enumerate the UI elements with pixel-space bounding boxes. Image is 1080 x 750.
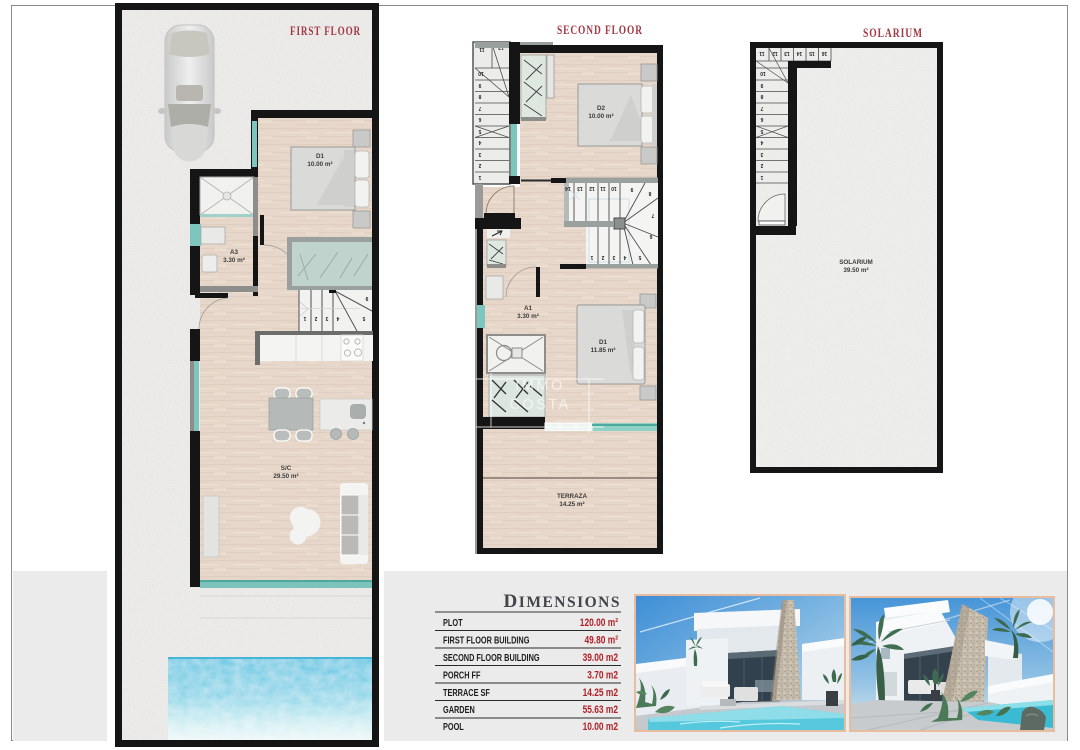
svg-text:10.00 m2: 10.00 m2 (583, 721, 619, 734)
svg-text:15: 15 (809, 50, 815, 56)
svg-text:4: 4 (760, 139, 763, 145)
svg-text:PORCH FF: PORCH FF (443, 669, 481, 681)
svg-text:14: 14 (797, 50, 803, 56)
svg-text:3: 3 (325, 315, 328, 321)
svg-text:SECOND FLOOR BUILDING: SECOND FLOOR BUILDING (443, 652, 540, 664)
svg-text:2: 2 (601, 254, 604, 260)
svg-text:DIMENSIONS: DIMENSIONS (504, 591, 621, 612)
svg-text:11: 11 (600, 185, 606, 191)
svg-text:12: 12 (772, 50, 778, 56)
svg-text:SECOND FLOOR: SECOND FLOOR (557, 23, 643, 37)
svg-text:D1: D1 (316, 153, 325, 160)
svg-text:3.30 m²: 3.30 m² (223, 257, 245, 264)
svg-text:55.63 m2: 55.63 m2 (583, 704, 619, 717)
svg-text:3: 3 (478, 151, 481, 157)
svg-text:9: 9 (760, 82, 763, 88)
svg-text:A3: A3 (230, 249, 239, 256)
svg-text:13: 13 (577, 185, 583, 191)
svg-text:GARDEN: GARDEN (443, 704, 475, 716)
svg-text:SOLARIUM: SOLARIUM (839, 259, 873, 266)
svg-text:1: 1 (478, 174, 481, 180)
svg-text:7: 7 (760, 105, 763, 111)
svg-text:D2: D2 (597, 105, 606, 112)
svg-text:5: 5 (478, 128, 481, 134)
svg-text:10.00 m²: 10.00 m² (307, 161, 332, 168)
svg-text:TERRACE SF: TERRACE SF (443, 687, 490, 699)
svg-text:IMMO: IMMO (515, 378, 564, 394)
svg-text:12: 12 (589, 185, 595, 191)
svg-text:7: 7 (478, 105, 481, 111)
svg-text:10: 10 (760, 70, 766, 76)
svg-text:4: 4 (336, 315, 339, 321)
svg-text:9: 9 (365, 295, 368, 301)
svg-text:9: 9 (630, 186, 633, 192)
svg-text:6: 6 (478, 116, 481, 122)
svg-text:5: 5 (760, 128, 763, 134)
svg-text:14.25 m2: 14.25 m2 (583, 687, 619, 700)
svg-text:39.00 m2: 39.00 m2 (583, 652, 619, 665)
svg-text:3: 3 (612, 254, 615, 260)
svg-text:1: 1 (590, 254, 593, 260)
svg-text:6: 6 (760, 116, 763, 122)
svg-text:A1: A1 (524, 305, 533, 312)
svg-text:5: 5 (638, 254, 641, 260)
svg-text:3.70 m2: 3.70 m2 (587, 669, 618, 682)
svg-text:14.25 m²: 14.25 m² (559, 501, 584, 508)
svg-text:FIRST FLOOR BUILDING: FIRST FLOOR BUILDING (443, 634, 529, 646)
svg-text:120.00 m²: 120.00 m² (580, 617, 619, 630)
svg-text:4: 4 (623, 254, 626, 260)
svg-text:FIRST FLOOR: FIRST FLOOR (290, 24, 361, 38)
svg-text:TERRAZA: TERRAZA (557, 493, 588, 500)
svg-text:POOL: POOL (443, 721, 464, 733)
svg-text:10: 10 (478, 70, 484, 76)
svg-text:3: 3 (760, 151, 763, 157)
svg-text:S/C: S/C (281, 465, 292, 472)
svg-text:8: 8 (478, 93, 481, 99)
svg-text:6: 6 (649, 233, 652, 239)
svg-text:SOLARIUM: SOLARIUM (863, 26, 923, 40)
svg-text:10.00 m²: 10.00 m² (588, 113, 613, 120)
svg-text:2: 2 (760, 162, 763, 168)
svg-text:4: 4 (478, 139, 481, 145)
svg-text:D1: D1 (599, 339, 608, 346)
svg-text:11: 11 (759, 50, 765, 56)
svg-text:9: 9 (478, 82, 481, 88)
svg-text:11.85 m²: 11.85 m² (591, 347, 616, 354)
svg-text:14: 14 (565, 185, 571, 191)
svg-text:COSTA: COSTA (509, 397, 570, 413)
svg-text:2: 2 (478, 162, 481, 168)
svg-text:10: 10 (611, 185, 617, 191)
svg-text:5: 5 (362, 315, 365, 321)
svg-text:13: 13 (784, 50, 790, 56)
svg-text:1: 1 (303, 315, 306, 321)
svg-text:3.30 m²: 3.30 m² (517, 313, 539, 320)
svg-text:1: 1 (760, 174, 763, 180)
svg-text:16: 16 (822, 50, 828, 56)
svg-text:49.80 m²: 49.80 m² (584, 634, 618, 647)
svg-text:2: 2 (314, 315, 317, 321)
svg-text:39.50 m²: 39.50 m² (843, 267, 868, 274)
svg-text:8: 8 (760, 93, 763, 99)
svg-text:7: 7 (651, 212, 654, 218)
svg-text:8: 8 (648, 190, 651, 196)
svg-text:PLOT: PLOT (443, 617, 463, 629)
svg-text:29.50 m²: 29.50 m² (273, 473, 298, 480)
